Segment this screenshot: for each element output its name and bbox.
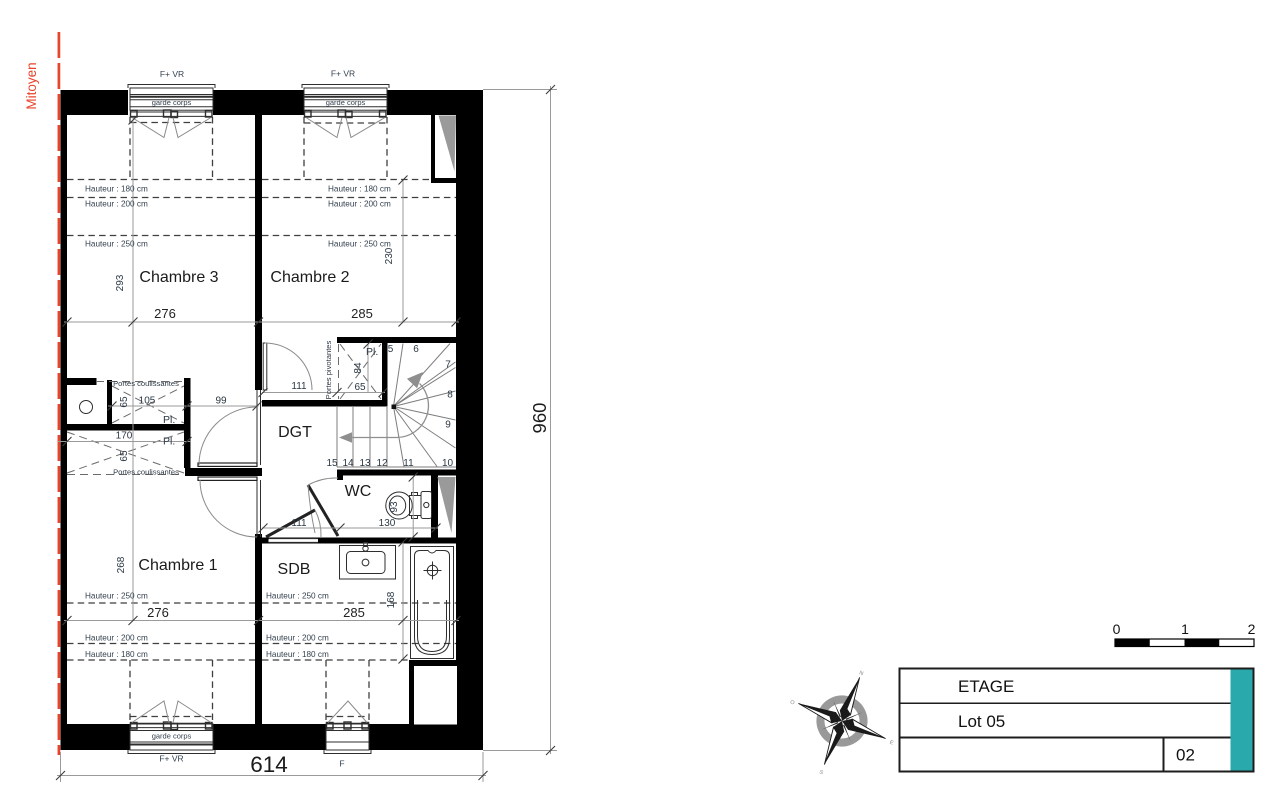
svg-text:Portes pivotantes: Portes pivotantes — [324, 340, 333, 399]
svg-text:14: 14 — [342, 458, 354, 469]
svg-text:Hauteur : 250 cm: Hauteur : 250 cm — [85, 240, 148, 249]
svg-text:0: 0 — [1113, 621, 1121, 637]
svg-text:6: 6 — [413, 344, 419, 355]
svg-text:Hauteur : 180 cm: Hauteur : 180 cm — [85, 185, 148, 194]
svg-text:Hauteur : 250 cm: Hauteur : 250 cm — [328, 240, 391, 249]
svg-text:2: 2 — [1248, 621, 1256, 637]
svg-text:Portes coulissantes: Portes coulissantes — [113, 379, 179, 388]
svg-text:8: 8 — [447, 390, 453, 401]
svg-text:Hauteur : 200 cm: Hauteur : 200 cm — [85, 200, 148, 209]
svg-text:12: 12 — [376, 458, 388, 469]
svg-text:Hauteur : 250 cm: Hauteur : 250 cm — [85, 592, 148, 601]
svg-text:F+ VR: F+ VR — [159, 754, 183, 764]
svg-text:ETAGE: ETAGE — [958, 677, 1014, 696]
svg-text:F: F — [339, 759, 344, 769]
svg-text:614: 614 — [250, 752, 288, 777]
svg-text:10: 10 — [442, 458, 454, 469]
svg-text:F+ VR: F+ VR — [160, 69, 184, 79]
svg-text:Hauteur : 200 cm: Hauteur : 200 cm — [85, 634, 148, 643]
svg-text:285: 285 — [351, 306, 373, 321]
svg-text:Chambre 1: Chambre 1 — [138, 557, 217, 574]
svg-text:Hauteur : 180 cm: Hauteur : 180 cm — [328, 185, 391, 194]
svg-text:7: 7 — [445, 360, 451, 371]
svg-text:Hauteur : 180 cm: Hauteur : 180 cm — [266, 650, 329, 659]
svg-text:garde corps: garde corps — [326, 98, 366, 107]
svg-text:268: 268 — [116, 556, 127, 573]
svg-text:Pl.: Pl. — [163, 436, 175, 448]
svg-text:99: 99 — [215, 396, 227, 407]
svg-text:111: 111 — [291, 381, 307, 392]
svg-text:293: 293 — [115, 274, 126, 291]
svg-text:276: 276 — [147, 605, 169, 620]
svg-text:111: 111 — [291, 518, 307, 529]
svg-text:Hauteur : 250 cm: Hauteur : 250 cm — [266, 592, 329, 601]
svg-text:02: 02 — [1176, 746, 1195, 765]
svg-text:65: 65 — [119, 450, 130, 462]
svg-text:93: 93 — [389, 501, 400, 513]
svg-text:WC: WC — [345, 483, 372, 500]
svg-text:SDB: SDB — [278, 561, 311, 578]
svg-text:84: 84 — [353, 362, 364, 374]
svg-text:170: 170 — [116, 431, 133, 442]
svg-text:11: 11 — [403, 458, 414, 469]
svg-text:230: 230 — [384, 247, 395, 264]
svg-text:105: 105 — [139, 396, 156, 407]
svg-text:Hauteur : 200 cm: Hauteur : 200 cm — [266, 634, 329, 643]
svg-text:Chambre 3: Chambre 3 — [139, 269, 218, 286]
svg-text:960: 960 — [529, 403, 550, 434]
svg-text:5: 5 — [388, 344, 394, 355]
svg-text:65: 65 — [354, 382, 366, 393]
svg-text:1: 1 — [1181, 621, 1189, 637]
svg-text:F+ VR: F+ VR — [331, 69, 355, 79]
svg-text:13: 13 — [359, 458, 371, 469]
svg-text:garde corps: garde corps — [152, 98, 192, 107]
svg-text:Mitoyen: Mitoyen — [24, 62, 39, 109]
svg-text:285: 285 — [343, 605, 365, 620]
svg-text:garde corps: garde corps — [152, 732, 192, 741]
svg-text:Chambre 2: Chambre 2 — [270, 269, 349, 286]
svg-text:Lot 05: Lot 05 — [958, 712, 1005, 731]
svg-text:Hauteur : 180 cm: Hauteur : 180 cm — [85, 650, 148, 659]
svg-text:130: 130 — [379, 518, 396, 529]
svg-text:65: 65 — [119, 396, 130, 408]
svg-text:Portes coulissantes: Portes coulissantes — [113, 468, 179, 477]
svg-text:15: 15 — [326, 458, 338, 469]
svg-text:Pl.: Pl. — [163, 414, 175, 426]
svg-text:9: 9 — [445, 420, 451, 431]
svg-text:Hauteur : 200 cm: Hauteur : 200 cm — [328, 200, 391, 209]
svg-text:168: 168 — [386, 591, 397, 608]
svg-text:Pl.: Pl. — [366, 346, 378, 358]
svg-text:DGT: DGT — [278, 424, 312, 441]
svg-text:276: 276 — [154, 306, 176, 321]
